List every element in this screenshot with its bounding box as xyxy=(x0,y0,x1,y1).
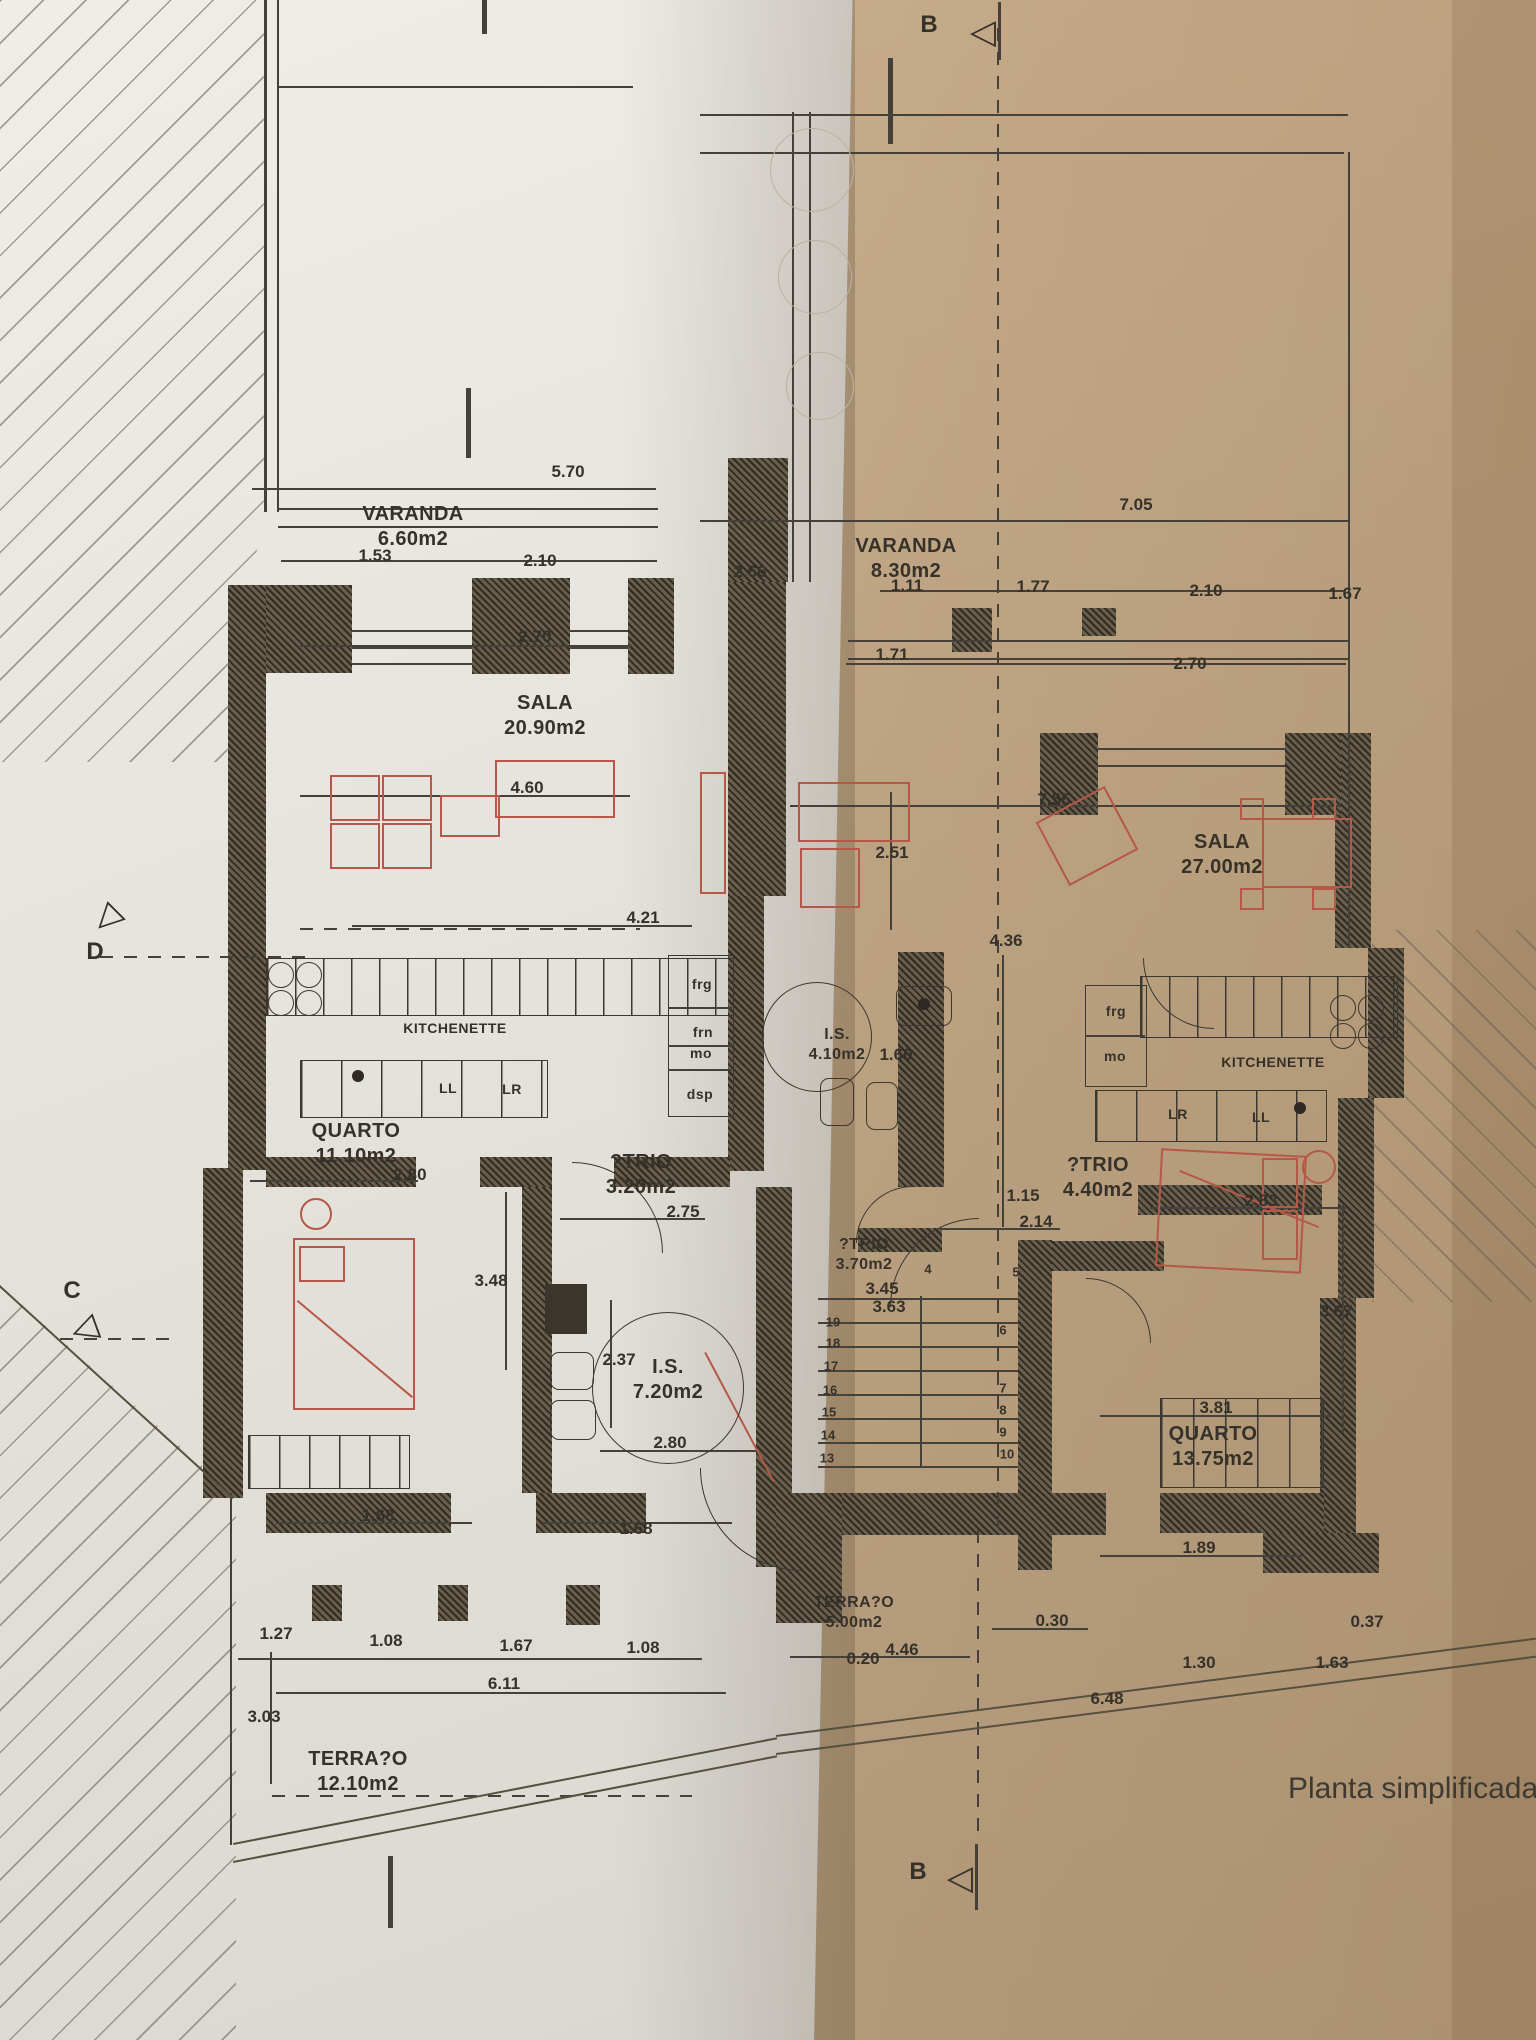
stair-number: 15 xyxy=(822,1405,836,1420)
axis-line xyxy=(300,928,640,930)
wall-segment xyxy=(312,1585,342,1621)
lot-boundary-line xyxy=(0,1285,234,1499)
wall-segment xyxy=(728,582,786,896)
room-label: SALA27.00m2 xyxy=(1181,830,1263,880)
stair-number: 5 xyxy=(1012,1265,1019,1280)
furniture xyxy=(1312,798,1336,820)
furniture xyxy=(1240,888,1264,910)
dimension-label: 1.68 xyxy=(619,1519,652,1539)
appliance-label: frn xyxy=(693,1024,713,1040)
dimension-label: 1.08 xyxy=(626,1638,659,1658)
drawing-line xyxy=(880,590,1345,592)
counter-grid xyxy=(1095,1090,1327,1142)
dimension-label: 2.10 xyxy=(523,551,556,571)
room-label: ?TRIO3.70m2 xyxy=(836,1235,893,1275)
fixture-circle xyxy=(1358,1023,1384,1049)
dimension-label: 0.30 xyxy=(1035,1611,1068,1631)
dimension-label: 3.63 xyxy=(872,1297,905,1317)
drawing-line xyxy=(277,0,279,512)
drawing-line xyxy=(846,663,1346,665)
dimension-label: 1.15 xyxy=(1006,1186,1039,1206)
drawing-line xyxy=(352,647,472,649)
stair-number: 10 xyxy=(1000,1447,1014,1462)
wall-segment xyxy=(842,1493,1106,1535)
dimension-label: 1.77 xyxy=(1016,577,1049,597)
dimension-label: 1.11 xyxy=(891,576,923,596)
tree-circle xyxy=(778,240,852,314)
dimension-label: 0.37 xyxy=(1350,1612,1383,1632)
plan-drawing: VARANDA6.60m2VARANDA8.30m2SALA20.90m2SAL… xyxy=(0,0,1536,2040)
dimension-label: 2.70 xyxy=(1173,654,1206,674)
room-label: VARANDA6.60m2 xyxy=(362,502,463,552)
stair-number: 13 xyxy=(820,1451,834,1466)
dimension-label: 3.81 xyxy=(1199,1398,1232,1418)
counter-block xyxy=(545,1284,587,1334)
furniture xyxy=(382,823,432,869)
wall-segment xyxy=(1160,1493,1324,1533)
furniture xyxy=(1312,888,1336,910)
appliance-label: LL xyxy=(439,1080,457,1096)
section-marker-letter: C xyxy=(63,1277,80,1305)
dimension-label: 1.30 xyxy=(1182,1653,1215,1673)
section-marker-letter: B xyxy=(920,11,937,39)
dimension-label: 1.63 xyxy=(1315,1653,1348,1673)
drawing-line xyxy=(570,647,628,649)
room-label: ?TRIO3.20m2 xyxy=(606,1150,676,1200)
appliance-label: frg xyxy=(692,976,712,992)
drawing-line xyxy=(466,388,471,458)
appliance-label: KITCHENETTE xyxy=(403,1020,507,1036)
appliance-label: mo xyxy=(690,1045,712,1061)
drawing-line xyxy=(252,488,656,490)
section-flag-icon: ◁ xyxy=(83,895,130,942)
wall-segment xyxy=(266,585,352,673)
floorplan-photo: VARANDA6.60m2VARANDA8.30m2SALA20.90m2SAL… xyxy=(0,0,1536,2040)
section-marker-letter: D xyxy=(86,938,103,966)
drawing-line xyxy=(352,663,472,665)
stair-tread xyxy=(818,1442,1018,1444)
door-swing-arc xyxy=(1086,1278,1151,1343)
appliance-label: LL xyxy=(1252,1109,1270,1125)
dimension-label: 1.67 xyxy=(499,1636,532,1656)
sanitary-fixture xyxy=(820,1078,854,1126)
drawing-line xyxy=(570,630,628,632)
dimension-label: 4.46 xyxy=(885,1640,918,1660)
furniture xyxy=(382,775,432,821)
sanitary-fixture xyxy=(866,1082,898,1130)
drawing-line xyxy=(278,526,658,528)
section-flag-icon: ◁ xyxy=(947,1858,973,1898)
appliance-label: KITCHENETTE xyxy=(1221,1054,1325,1070)
wall-segment xyxy=(566,1585,600,1625)
drawing-line xyxy=(238,1658,702,1660)
drawing-line xyxy=(975,1844,978,1910)
fixture-dot xyxy=(352,1070,364,1082)
room-label: I.S.7.20m2 xyxy=(633,1355,703,1405)
dimension-label: 2.75 xyxy=(666,1202,699,1222)
drawing-line xyxy=(230,1493,232,1845)
dimension-label: 7.55 xyxy=(1037,790,1070,810)
drawing-line xyxy=(281,560,657,562)
dimension-label: 4.60 xyxy=(510,778,543,798)
section-axis-line xyxy=(977,1530,979,1840)
door-swing-arc xyxy=(700,1468,803,1571)
appliance-label: LR xyxy=(502,1081,522,1097)
stair-tread xyxy=(818,1418,1018,1420)
fixture-circle xyxy=(268,962,294,988)
dimension-label: 2.66 xyxy=(733,562,766,582)
drawing-line xyxy=(277,86,633,88)
appliance-label: mo xyxy=(1104,1048,1126,1064)
wall-segment xyxy=(438,1585,468,1621)
stair-number: 7 xyxy=(999,1381,1006,1396)
drawing-line xyxy=(300,645,632,647)
drawing-line xyxy=(264,0,267,512)
fixture-circle xyxy=(296,962,322,988)
stair-number: 14 xyxy=(821,1428,835,1443)
dimension-label: 2.70 xyxy=(518,627,551,647)
room-label: I.S.4.10m2 xyxy=(809,1025,866,1065)
stair-number: 18 xyxy=(826,1336,840,1351)
room-label: ?TRIO4.40m2 xyxy=(1063,1153,1133,1203)
stair-number: 19 xyxy=(826,1315,840,1330)
wall-segment xyxy=(1052,1241,1164,1271)
appliance-label: dsp xyxy=(687,1086,713,1102)
furniture-round xyxy=(1302,1150,1336,1184)
section-flag-icon: ◁ xyxy=(970,12,996,52)
furniture xyxy=(798,782,910,842)
dimension-label: 1.08 xyxy=(369,1631,402,1651)
dimension-label: 2.10 xyxy=(1189,581,1222,601)
room-label: QUARTO13.75m2 xyxy=(1169,1422,1258,1472)
fixture-circle xyxy=(1358,995,1384,1021)
tree-circle xyxy=(770,128,854,212)
lot-boundary-line xyxy=(776,1656,1536,1756)
stair-number: 16 xyxy=(823,1383,837,1398)
dimension-label: 7.05 xyxy=(1119,495,1152,515)
drawing-line xyxy=(848,658,1348,660)
furniture xyxy=(440,795,500,837)
furniture xyxy=(700,772,726,894)
appliance-label: frg xyxy=(1106,1003,1126,1019)
drawing-line xyxy=(482,0,487,34)
dimension-label: 6.11 xyxy=(488,1674,520,1694)
dimension-label: 2.37 xyxy=(602,1350,635,1370)
wall-segment xyxy=(266,1493,451,1533)
fixture-circle xyxy=(296,990,322,1016)
appliance-divider xyxy=(668,1007,732,1009)
drawing-line xyxy=(700,520,1348,522)
dimension-label: 2.80 xyxy=(653,1433,686,1453)
furniture xyxy=(330,823,380,869)
section-axis-line xyxy=(997,28,999,1528)
drawing-line xyxy=(1002,955,1004,1227)
dimension-label: 2.80 xyxy=(393,1165,426,1185)
wall-segment xyxy=(203,1168,243,1498)
dimension-label: 1.60 xyxy=(879,1045,912,1065)
drawing-line xyxy=(1098,765,1286,767)
fixture-circle xyxy=(268,990,294,1016)
drawing-line xyxy=(700,114,1348,116)
tree-circle xyxy=(786,352,854,420)
plan-caption: Planta simplificada d xyxy=(1288,1772,1536,1806)
fixture-circle xyxy=(1330,1023,1356,1049)
dimension-label: 1.53 xyxy=(358,546,391,566)
drawing-line xyxy=(352,630,472,632)
dimension-label: 2.14 xyxy=(1019,1212,1052,1232)
furniture xyxy=(800,848,860,908)
furniture xyxy=(1262,818,1352,888)
appliance-divider xyxy=(1085,1035,1145,1037)
wall-segment xyxy=(628,578,674,674)
stair-tread xyxy=(818,1346,1018,1348)
dimension-label: 1.67 xyxy=(1328,584,1361,604)
furniture xyxy=(299,1246,345,1282)
dimension-label: 3.67 xyxy=(1319,1302,1352,1322)
drawing-line xyxy=(790,1656,970,1658)
wall-segment xyxy=(228,585,266,1170)
dimension-label: 6.48 xyxy=(1090,1689,1123,1709)
counter-grid xyxy=(266,958,734,1016)
dimension-label: 1.89 xyxy=(1182,1538,1215,1558)
stair-tread xyxy=(818,1394,1018,1396)
appliance-label: LR xyxy=(1168,1106,1188,1122)
wall-segment xyxy=(1263,1533,1379,1573)
stair-number: 6 xyxy=(999,1323,1006,1338)
furniture xyxy=(330,775,380,821)
room-label: QUARTO11.10m2 xyxy=(312,1119,401,1169)
room-label: TERRA?O12.10m2 xyxy=(308,1747,407,1797)
dimension-label: 2.83 xyxy=(1244,1191,1277,1211)
wall-segment xyxy=(472,578,570,674)
drawing-line xyxy=(848,640,1348,642)
dimension-label: 3.48 xyxy=(474,1271,507,1291)
wall-segment xyxy=(522,1187,552,1493)
sanitary-fixture xyxy=(550,1400,596,1440)
dimension-label: 4.21 xyxy=(626,908,659,928)
dimension-label: 1.71 xyxy=(875,645,908,665)
drawing-line xyxy=(1098,748,1286,750)
drawing-line xyxy=(278,508,658,510)
stair-number: 17 xyxy=(824,1359,838,1374)
section-flag-icon: ◁ xyxy=(65,1305,103,1352)
drawing-line xyxy=(388,1856,393,1928)
wall-segment xyxy=(1082,608,1116,636)
dimension-label: 5.70 xyxy=(551,462,584,482)
stair-tread xyxy=(818,1322,1018,1324)
dimension-label: 3.45 xyxy=(865,1279,898,1299)
section-marker-letter: B xyxy=(909,1858,926,1886)
stair-number: 9 xyxy=(999,1425,1006,1440)
furniture-round xyxy=(300,1198,332,1230)
fixture-circle xyxy=(1330,995,1356,1021)
room-label: TERRA?O5.00m2 xyxy=(814,1593,894,1633)
wall-segment xyxy=(952,608,992,652)
room-label: SALA20.90m2 xyxy=(504,691,586,741)
stair-number: 4 xyxy=(924,1262,931,1277)
stair-number: 8 xyxy=(999,1403,1006,1418)
counter-grid xyxy=(248,1435,410,1489)
dimension-label: 1.68 xyxy=(361,1506,394,1526)
dimension-label: 4.36 xyxy=(989,931,1022,951)
dimension-label: 2.51 xyxy=(875,843,908,863)
fixture-dot xyxy=(1294,1102,1306,1114)
drawing-line xyxy=(888,58,893,144)
sanitary-fixture xyxy=(896,986,952,1026)
furniture xyxy=(1240,798,1264,820)
dimension-label: 1.27 xyxy=(259,1624,292,1644)
stair-tread xyxy=(818,1466,1018,1468)
appliance-divider xyxy=(668,1069,732,1071)
wall-segment xyxy=(480,1157,552,1187)
sanitary-fixture xyxy=(550,1352,594,1390)
dimension-label: 0.20 xyxy=(846,1649,879,1669)
dimension-label: 3.03 xyxy=(247,1707,280,1727)
stair-tread xyxy=(818,1370,1018,1372)
